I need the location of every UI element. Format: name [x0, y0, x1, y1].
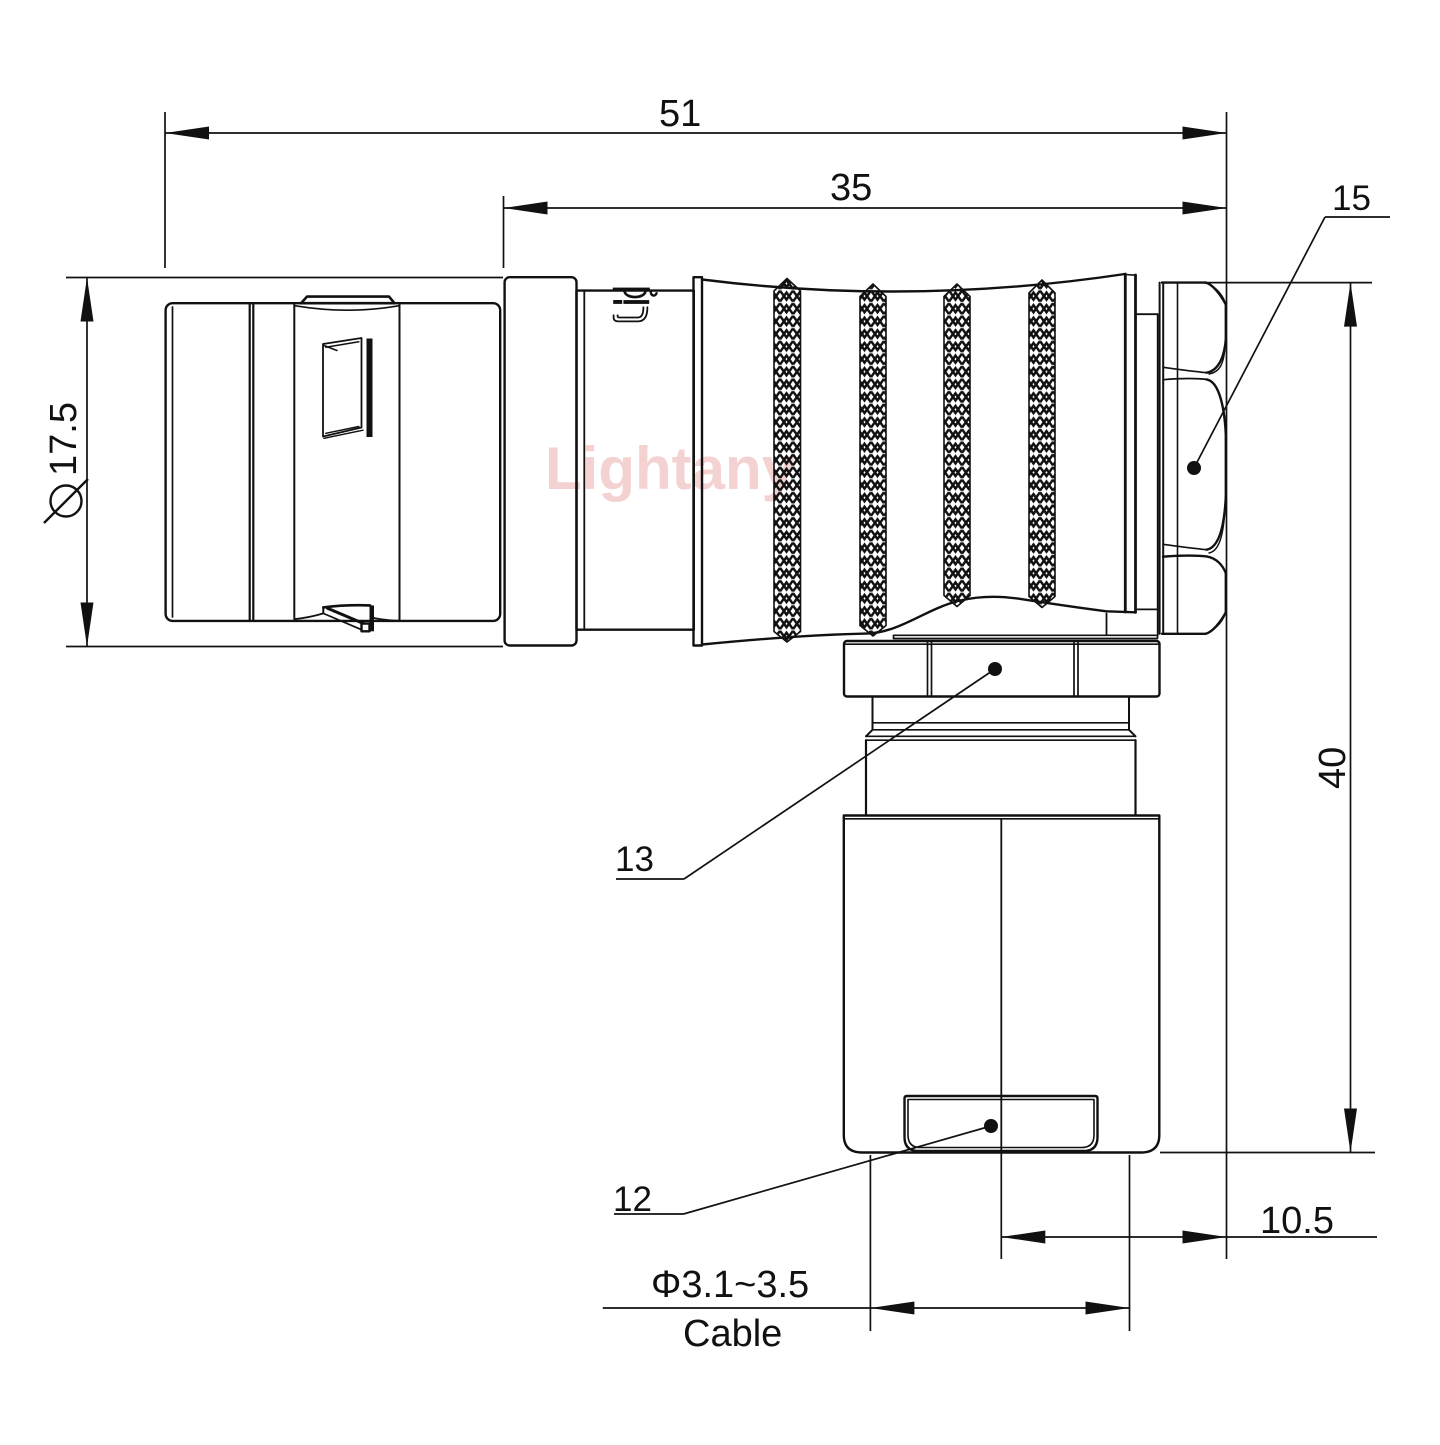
- svg-text:Cable: Cable: [683, 1313, 782, 1355]
- svg-text:12: 12: [613, 1180, 652, 1219]
- svg-text:13: 13: [615, 840, 654, 879]
- svg-text:51: 51: [659, 93, 701, 135]
- svg-text:10.5: 10.5: [1260, 1200, 1334, 1242]
- svg-text:15: 15: [1332, 179, 1371, 218]
- svg-text:17.5: 17.5: [43, 402, 85, 476]
- svg-text:Lightany: Lightany: [545, 435, 796, 502]
- svg-text:35: 35: [830, 167, 872, 209]
- svg-text:40: 40: [1312, 747, 1354, 789]
- svg-text:Φ3.1~3.5: Φ3.1~3.5: [651, 1264, 809, 1306]
